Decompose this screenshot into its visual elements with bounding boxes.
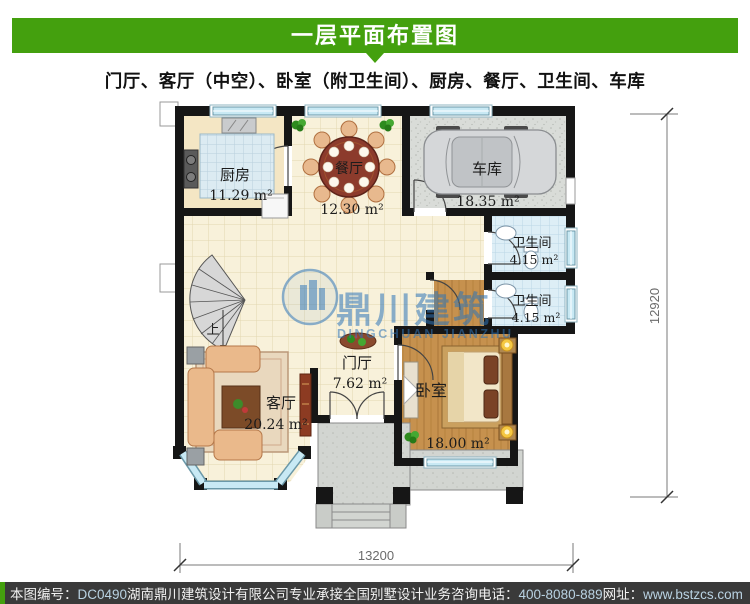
bath-lower-area: 4.15 m²	[512, 310, 561, 325]
phone-label: 咨询电话：	[451, 587, 519, 602]
watermark-en: DINGCHUAN JIANZHU	[337, 327, 514, 341]
garage-area: 18.35 m²	[456, 194, 519, 210]
living-label: 客厅	[266, 394, 296, 412]
living-area: 20.24 m²	[244, 417, 307, 433]
dimension-bottom-value: 13200	[358, 548, 394, 563]
bath-lower-window-icon	[565, 286, 577, 322]
bed-icon	[442, 346, 512, 428]
watermark-cn: 鼎川建筑	[336, 289, 492, 330]
dining-area: 12.30 m²	[320, 202, 383, 218]
foyer-area: 7.62 m²	[333, 376, 388, 392]
bedroom-window-icon	[424, 457, 496, 468]
bath-upper-window-icon	[565, 228, 577, 268]
page: 一层平面布置图 门厅、客厅（中空）、卧室（附卫生间）、厨房、餐厅、卫生间、车库	[0, 0, 750, 604]
foyer-label: 门厅	[342, 354, 372, 372]
website-value: www.bstzcs.com	[643, 587, 743, 602]
bath-upper-area: 4.15 m²	[510, 252, 559, 267]
dining-label: 餐厅	[335, 161, 363, 177]
garage-label: 车库	[472, 160, 502, 178]
kitchen-label: 厨房	[220, 166, 250, 184]
website: 网址：www.bstzcs.com	[603, 583, 743, 603]
entry-steps	[332, 504, 390, 528]
stair-up-label: 上	[206, 323, 219, 338]
plan-number-label: 本图编号：	[10, 587, 78, 602]
garage-side-door	[566, 178, 575, 204]
company-line: 湖南鼎川建筑设计有限公司专业承接全国别墅设计业务	[127, 583, 451, 603]
phone: 咨询电话：400-8080-889	[451, 583, 603, 603]
dimension-right-value: 12920	[647, 288, 662, 324]
bath-lower-label: 卫生间	[512, 294, 551, 309]
phone-value: 400-8080-889	[519, 587, 603, 602]
footer-bar: 本图编号：DC0490 湖南鼎川建筑设计有限公司专业承接全国别墅设计业务 咨询电…	[0, 582, 750, 604]
stove-icon	[184, 150, 198, 188]
dining-window-icon	[305, 105, 381, 117]
plan-number-value: DC0490	[78, 587, 128, 602]
watermark-logo-icon	[283, 270, 337, 324]
kitchen-area: 11.29 m²	[209, 188, 272, 204]
bedroom-label: 卧室	[415, 381, 447, 400]
garage-window-icon	[430, 105, 492, 117]
range-hood-icon	[222, 118, 256, 133]
floor-plan: 厨房 11.29 m² 餐厅 12.30 m² 车库 18.35 m² 卫生间 …	[0, 0, 750, 604]
bedroom-area: 18.00 m²	[426, 436, 489, 452]
plan-number: 本图编号：DC0490	[10, 583, 127, 603]
bath-upper-label: 卫生间	[512, 236, 551, 251]
footer-green-stripe	[0, 582, 5, 604]
website-label: 网址：	[603, 587, 644, 602]
kitchen-window-icon	[210, 105, 276, 117]
